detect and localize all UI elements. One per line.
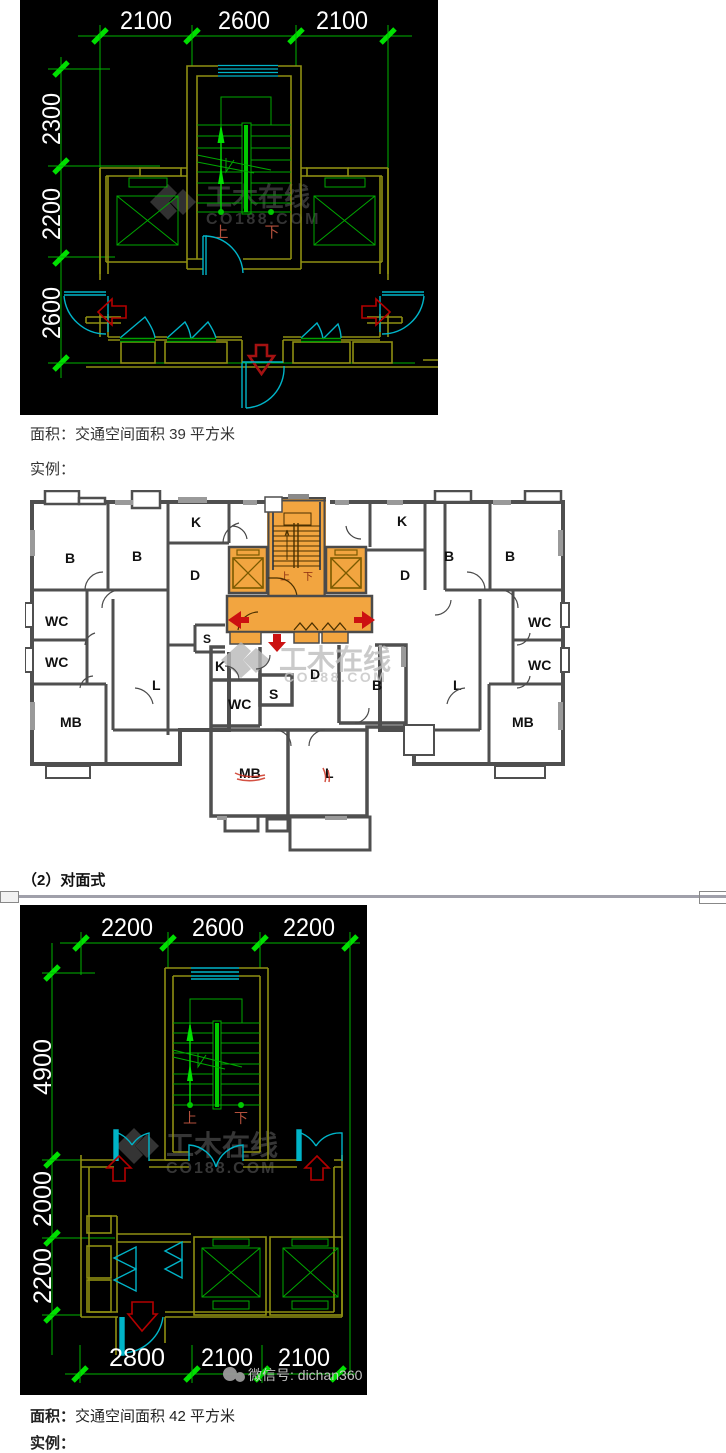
svg-text:2800: 2800 xyxy=(109,1344,165,1372)
svg-text:2200: 2200 xyxy=(283,914,335,942)
svg-text:S: S xyxy=(269,686,278,702)
svg-text:下: 下 xyxy=(303,572,313,583)
svg-text:S: S xyxy=(203,632,211,646)
svg-text:2300: 2300 xyxy=(38,93,66,145)
svg-text:2100: 2100 xyxy=(316,7,368,35)
svg-text:2600: 2600 xyxy=(218,7,270,35)
svg-text:CO188.COM: CO188.COM xyxy=(166,1160,276,1177)
svg-text:2000: 2000 xyxy=(29,1171,57,1227)
svg-text:MB: MB xyxy=(60,714,82,730)
svg-text:WC: WC xyxy=(528,614,551,630)
svg-text:下: 下 xyxy=(264,224,279,241)
svg-text:MB: MB xyxy=(239,765,261,781)
svg-text:MB: MB xyxy=(512,714,534,730)
svg-text:2200: 2200 xyxy=(29,1248,57,1304)
svg-text:WC: WC xyxy=(228,696,251,712)
svg-text:上: 上 xyxy=(213,224,228,241)
svg-text:上: 上 xyxy=(183,1110,197,1126)
svg-text:K: K xyxy=(397,513,407,529)
svg-text:L: L xyxy=(152,677,161,693)
svg-text:B: B xyxy=(444,548,454,564)
svg-text:K: K xyxy=(215,658,225,674)
svg-text:D: D xyxy=(190,567,200,583)
svg-text:下: 下 xyxy=(234,1110,248,1126)
svg-text:2600: 2600 xyxy=(38,287,66,339)
svg-text:2600: 2600 xyxy=(192,914,244,942)
svg-text:B: B xyxy=(65,550,75,566)
svg-text:2200: 2200 xyxy=(38,188,66,240)
svg-text:B: B xyxy=(132,548,142,564)
svg-text:WC: WC xyxy=(45,654,68,670)
svg-text:WC: WC xyxy=(45,613,68,629)
svg-text:WC: WC xyxy=(528,657,551,673)
svg-text:4900: 4900 xyxy=(29,1039,57,1095)
svg-text:2200: 2200 xyxy=(101,914,153,942)
svg-text:2100: 2100 xyxy=(120,7,172,35)
svg-text:D: D xyxy=(310,666,320,682)
svg-text:D: D xyxy=(400,567,410,583)
svg-text:K: K xyxy=(191,514,201,530)
svg-text:B: B xyxy=(372,677,382,693)
svg-text:B: B xyxy=(505,548,515,564)
svg-text:微信号: dichan360: 微信号: dichan360 xyxy=(248,1367,363,1383)
